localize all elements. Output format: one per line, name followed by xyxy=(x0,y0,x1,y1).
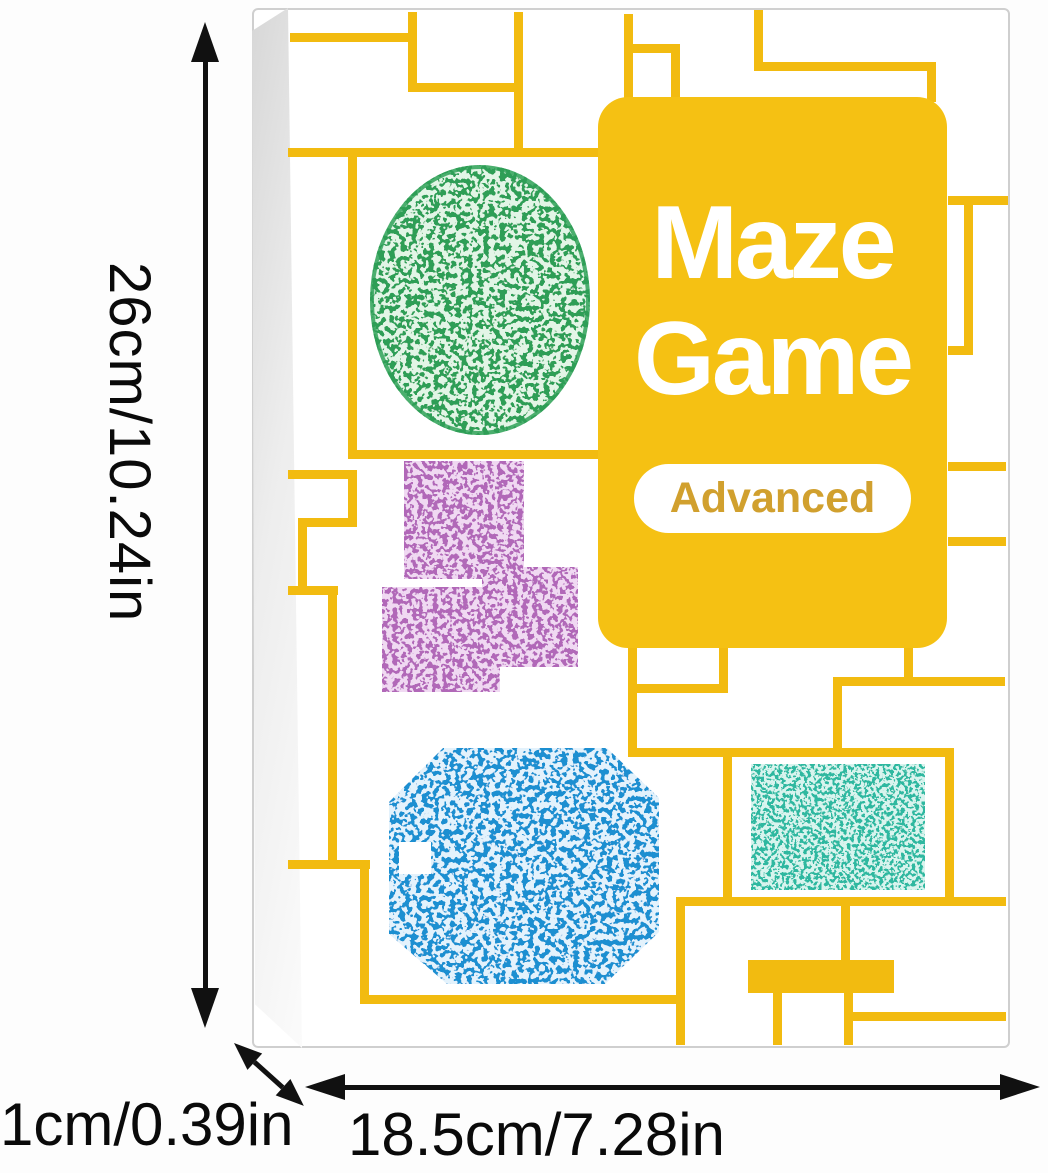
pattern-line xyxy=(927,62,936,102)
depth-dimension-label: 1cm/0.39in xyxy=(0,1090,294,1159)
game-title: Maze Game xyxy=(634,185,911,418)
pattern-line xyxy=(723,748,732,906)
pattern-line xyxy=(628,748,954,757)
pattern-line xyxy=(628,645,637,755)
pattern-line xyxy=(514,12,523,155)
pattern-line xyxy=(288,148,600,157)
pattern-line xyxy=(948,346,973,355)
game-title-line2: Game xyxy=(634,301,911,417)
pattern-line xyxy=(833,677,1005,686)
game-title-line1: Maze xyxy=(634,185,911,301)
pattern-line xyxy=(628,684,728,693)
pattern-line xyxy=(945,748,954,906)
pattern-line xyxy=(671,44,680,102)
pattern-line xyxy=(298,518,307,592)
blue-octagon-maze xyxy=(383,742,665,990)
pattern-line xyxy=(290,33,416,42)
pattern-line xyxy=(408,83,523,92)
pattern-line xyxy=(408,12,417,90)
arrow-left-icon xyxy=(305,1074,345,1100)
title-panel: Maze Game Advanced xyxy=(598,97,947,648)
pattern-bar xyxy=(748,960,894,993)
pattern-line xyxy=(948,537,1006,546)
arrow-shaft xyxy=(253,1060,285,1089)
pattern-line xyxy=(844,1012,1006,1021)
pattern-line xyxy=(773,990,782,1045)
teal-rectangle-maze xyxy=(750,763,926,891)
pattern-line xyxy=(300,518,357,527)
pattern-line xyxy=(841,897,850,967)
pattern-line xyxy=(348,148,357,458)
arrow-shaft xyxy=(343,1085,1003,1090)
pattern-line xyxy=(348,470,357,522)
arrow-down-icon xyxy=(191,988,219,1028)
arrow-up-icon xyxy=(191,22,219,62)
pattern-line xyxy=(288,470,357,479)
width-dimension-label: 18.5cm/7.28in xyxy=(348,1100,725,1169)
pattern-line xyxy=(754,10,763,70)
purple-tetromino-maze xyxy=(378,455,588,700)
pattern-line xyxy=(360,860,369,1002)
green-oval-maze xyxy=(368,163,592,437)
pattern-line xyxy=(964,196,973,354)
pattern-line xyxy=(676,897,685,1045)
pattern-line xyxy=(833,677,842,757)
pattern-line xyxy=(948,462,1006,471)
pattern-line xyxy=(948,196,1008,205)
pattern-line xyxy=(360,995,685,1004)
pattern-line xyxy=(288,860,370,869)
product-dimension-diagram: Maze Game Advanced 26cm/10.24in 1cm/0.39… xyxy=(0,0,1048,1173)
octagon-start-square xyxy=(399,842,431,874)
arrow-shaft xyxy=(203,58,208,990)
arrow-right-icon xyxy=(1000,1074,1040,1100)
pattern-line xyxy=(624,14,633,102)
pattern-line xyxy=(754,62,936,71)
pattern-line xyxy=(328,586,337,868)
advanced-badge: Advanced xyxy=(634,464,912,533)
height-dimension-label: 26cm/10.24in xyxy=(96,262,163,622)
pattern-line xyxy=(719,645,728,693)
